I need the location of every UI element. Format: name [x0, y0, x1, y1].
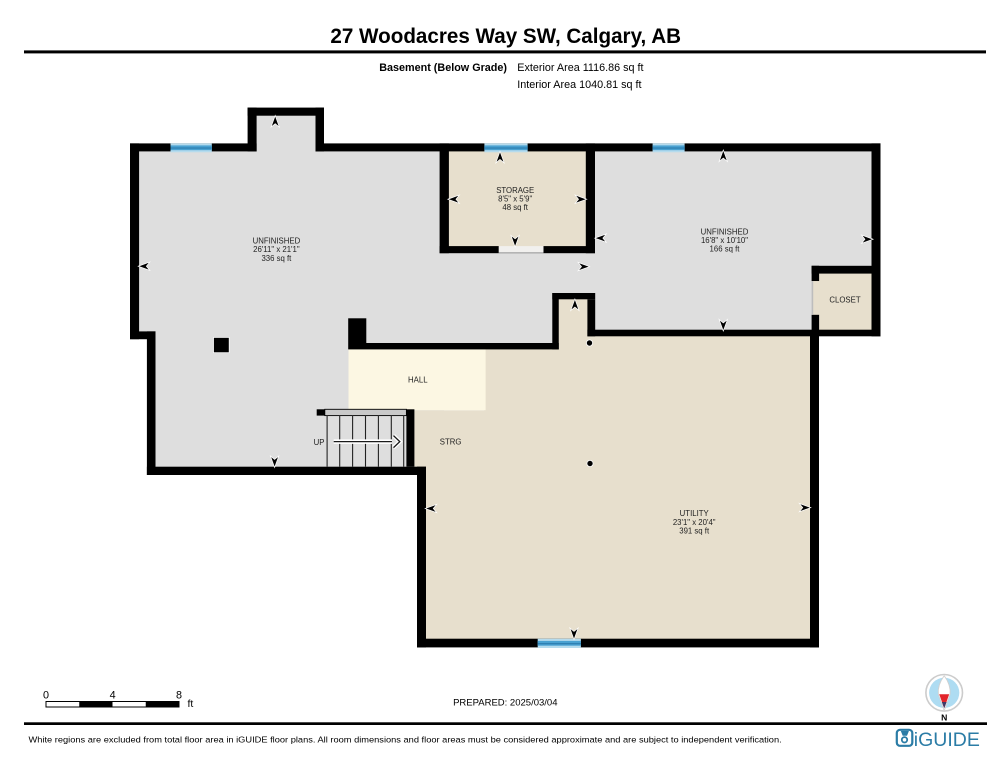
svg-text:4: 4 [110, 689, 116, 701]
svg-text:UP: UP [314, 438, 325, 447]
svg-text:PREPARED: 2025/03/04: PREPARED: 2025/03/04 [453, 698, 557, 709]
svg-text:N: N [941, 712, 947, 722]
svg-text:166 sq ft: 166 sq ft [710, 245, 741, 254]
svg-text:CLOSET: CLOSET [829, 296, 860, 305]
svg-text:336 sq ft: 336 sq ft [261, 254, 292, 263]
svg-text:0: 0 [43, 689, 49, 701]
svg-text:HALL: HALL [408, 376, 428, 385]
svg-text:8: 8 [176, 689, 182, 701]
svg-text:STRG: STRG [440, 438, 462, 447]
svg-text:48 sq ft: 48 sq ft [502, 203, 528, 212]
svg-text:White regions are excluded fro: White regions are excluded from total fl… [29, 734, 782, 744]
svg-text:27 Woodacres Way SW, Calgary,: 27 Woodacres Way SW, Calgary, AB [330, 23, 681, 48]
svg-text:iGUIDE: iGUIDE [914, 729, 980, 751]
svg-text:Interior Area 1040.81 sq ft: Interior Area 1040.81 sq ft [517, 79, 641, 91]
svg-text:ft: ft [188, 698, 194, 710]
svg-text:Basement (Below Grade): Basement (Below Grade) [379, 62, 507, 74]
svg-text:391 sq ft: 391 sq ft [679, 527, 710, 536]
svg-text:UTILITY: UTILITY [680, 509, 710, 518]
svg-text:Exterior Area 1116.86 sq ft: Exterior Area 1116.86 sq ft [517, 62, 643, 74]
